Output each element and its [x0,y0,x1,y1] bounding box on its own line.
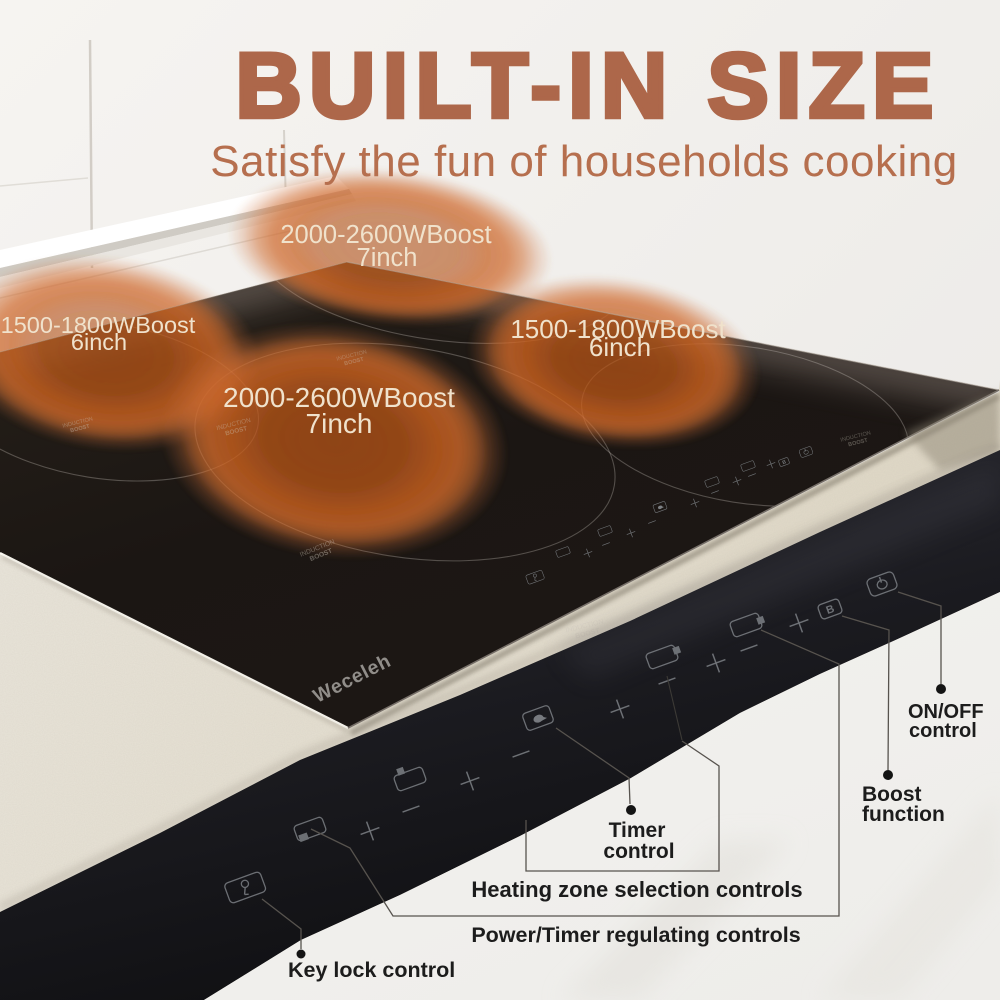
svg-text:6inch: 6inch [589,332,651,362]
svg-text:7inch: 7inch [357,244,418,272]
svg-text:Key lock control: Key lock control [288,958,455,982]
svg-text:function: function [862,803,945,826]
svg-text:control: control [603,840,674,863]
svg-text:Heating zone selection control: Heating zone selection controls [471,877,802,902]
svg-text:BUILT-IN SIZE: BUILT-IN SIZE [235,35,940,137]
svg-text:6inch: 6inch [71,329,127,355]
svg-text:Power/Timer regulating contr: Power/Timer regulating controls [471,923,800,947]
svg-text:Satisfy the fun of households: Satisfy the fun of households cooking [210,137,957,186]
svg-text:7inch: 7inch [306,408,373,439]
svg-text:Timer: Timer [609,819,666,842]
svg-text:control: control [909,720,977,742]
